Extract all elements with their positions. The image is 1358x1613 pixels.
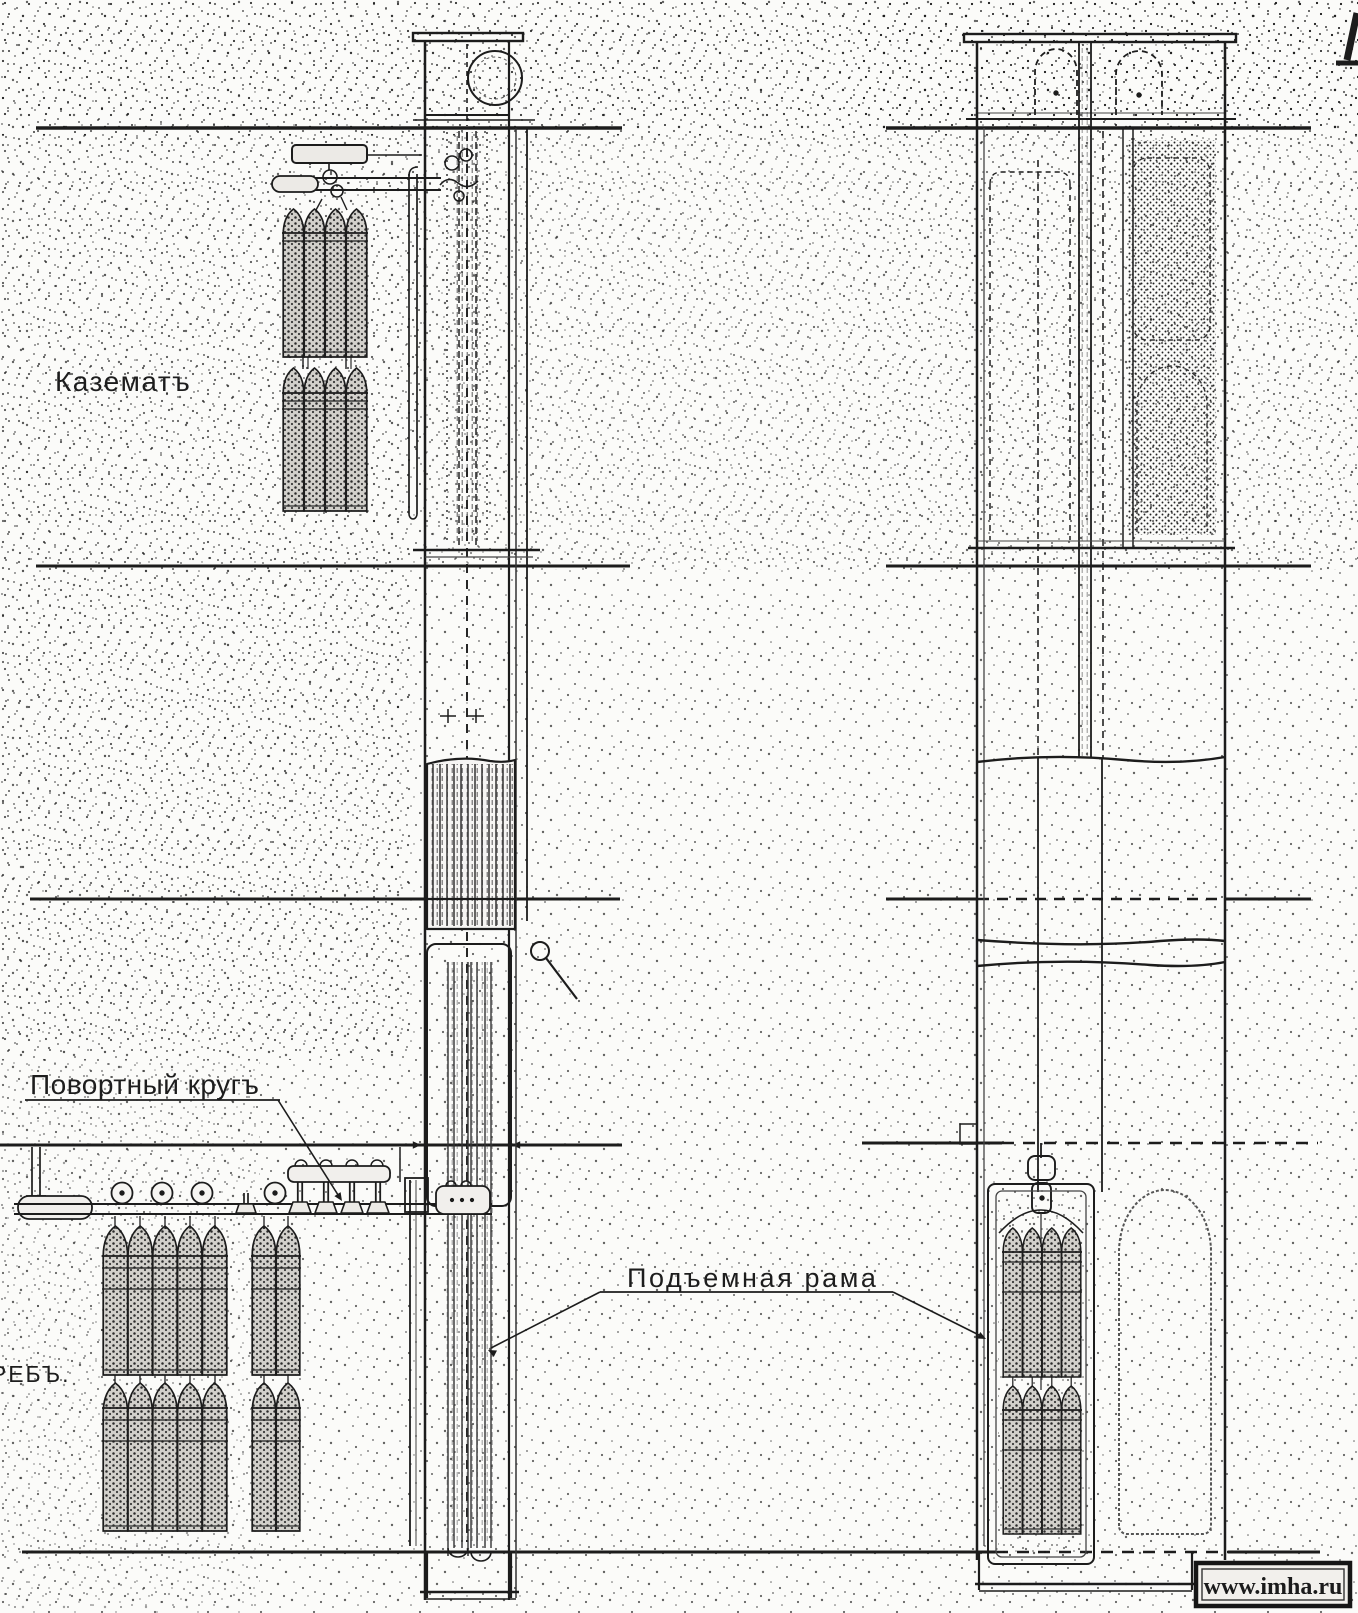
- svg-text:ПОГРЕБЪ.: ПОГРЕБЪ.: [0, 1361, 70, 1387]
- svg-text:www.imha.ru: www.imha.ru: [1204, 1574, 1343, 1600]
- svg-text:Подъемная рама: Подъемная рама: [627, 1263, 879, 1293]
- svg-text:Повортный кругъ: Повортный кругъ: [30, 1069, 259, 1100]
- svg-text:Казематъ: Казематъ: [55, 366, 191, 397]
